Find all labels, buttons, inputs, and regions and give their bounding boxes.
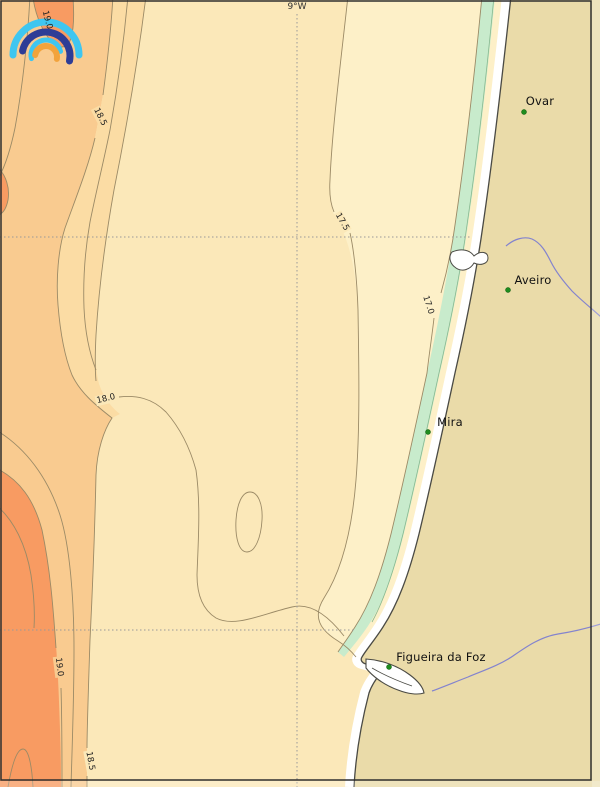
frame-margin-bottom bbox=[0, 781, 600, 787]
frame-margin-right bbox=[592, 0, 600, 787]
city-label-mira: Mira bbox=[437, 415, 463, 429]
sst-contour-map: 9°W 19.0 18.5 17.5 17.0 18.0 19.0 18.5 O… bbox=[0, 0, 600, 787]
city-label-aveiro: Aveiro bbox=[515, 273, 552, 287]
meridian-label-9w: 9°W bbox=[287, 2, 306, 12]
city-marker-aveiro bbox=[506, 288, 511, 293]
city-label-ovar: Ovar bbox=[526, 94, 554, 108]
city-label-figueira-da-foz: Figueira da Foz bbox=[396, 650, 486, 664]
city-marker-ovar bbox=[522, 110, 527, 115]
city-marker-figueira bbox=[387, 665, 392, 670]
city-marker-mira bbox=[426, 430, 431, 435]
map-canvas bbox=[0, 0, 600, 787]
